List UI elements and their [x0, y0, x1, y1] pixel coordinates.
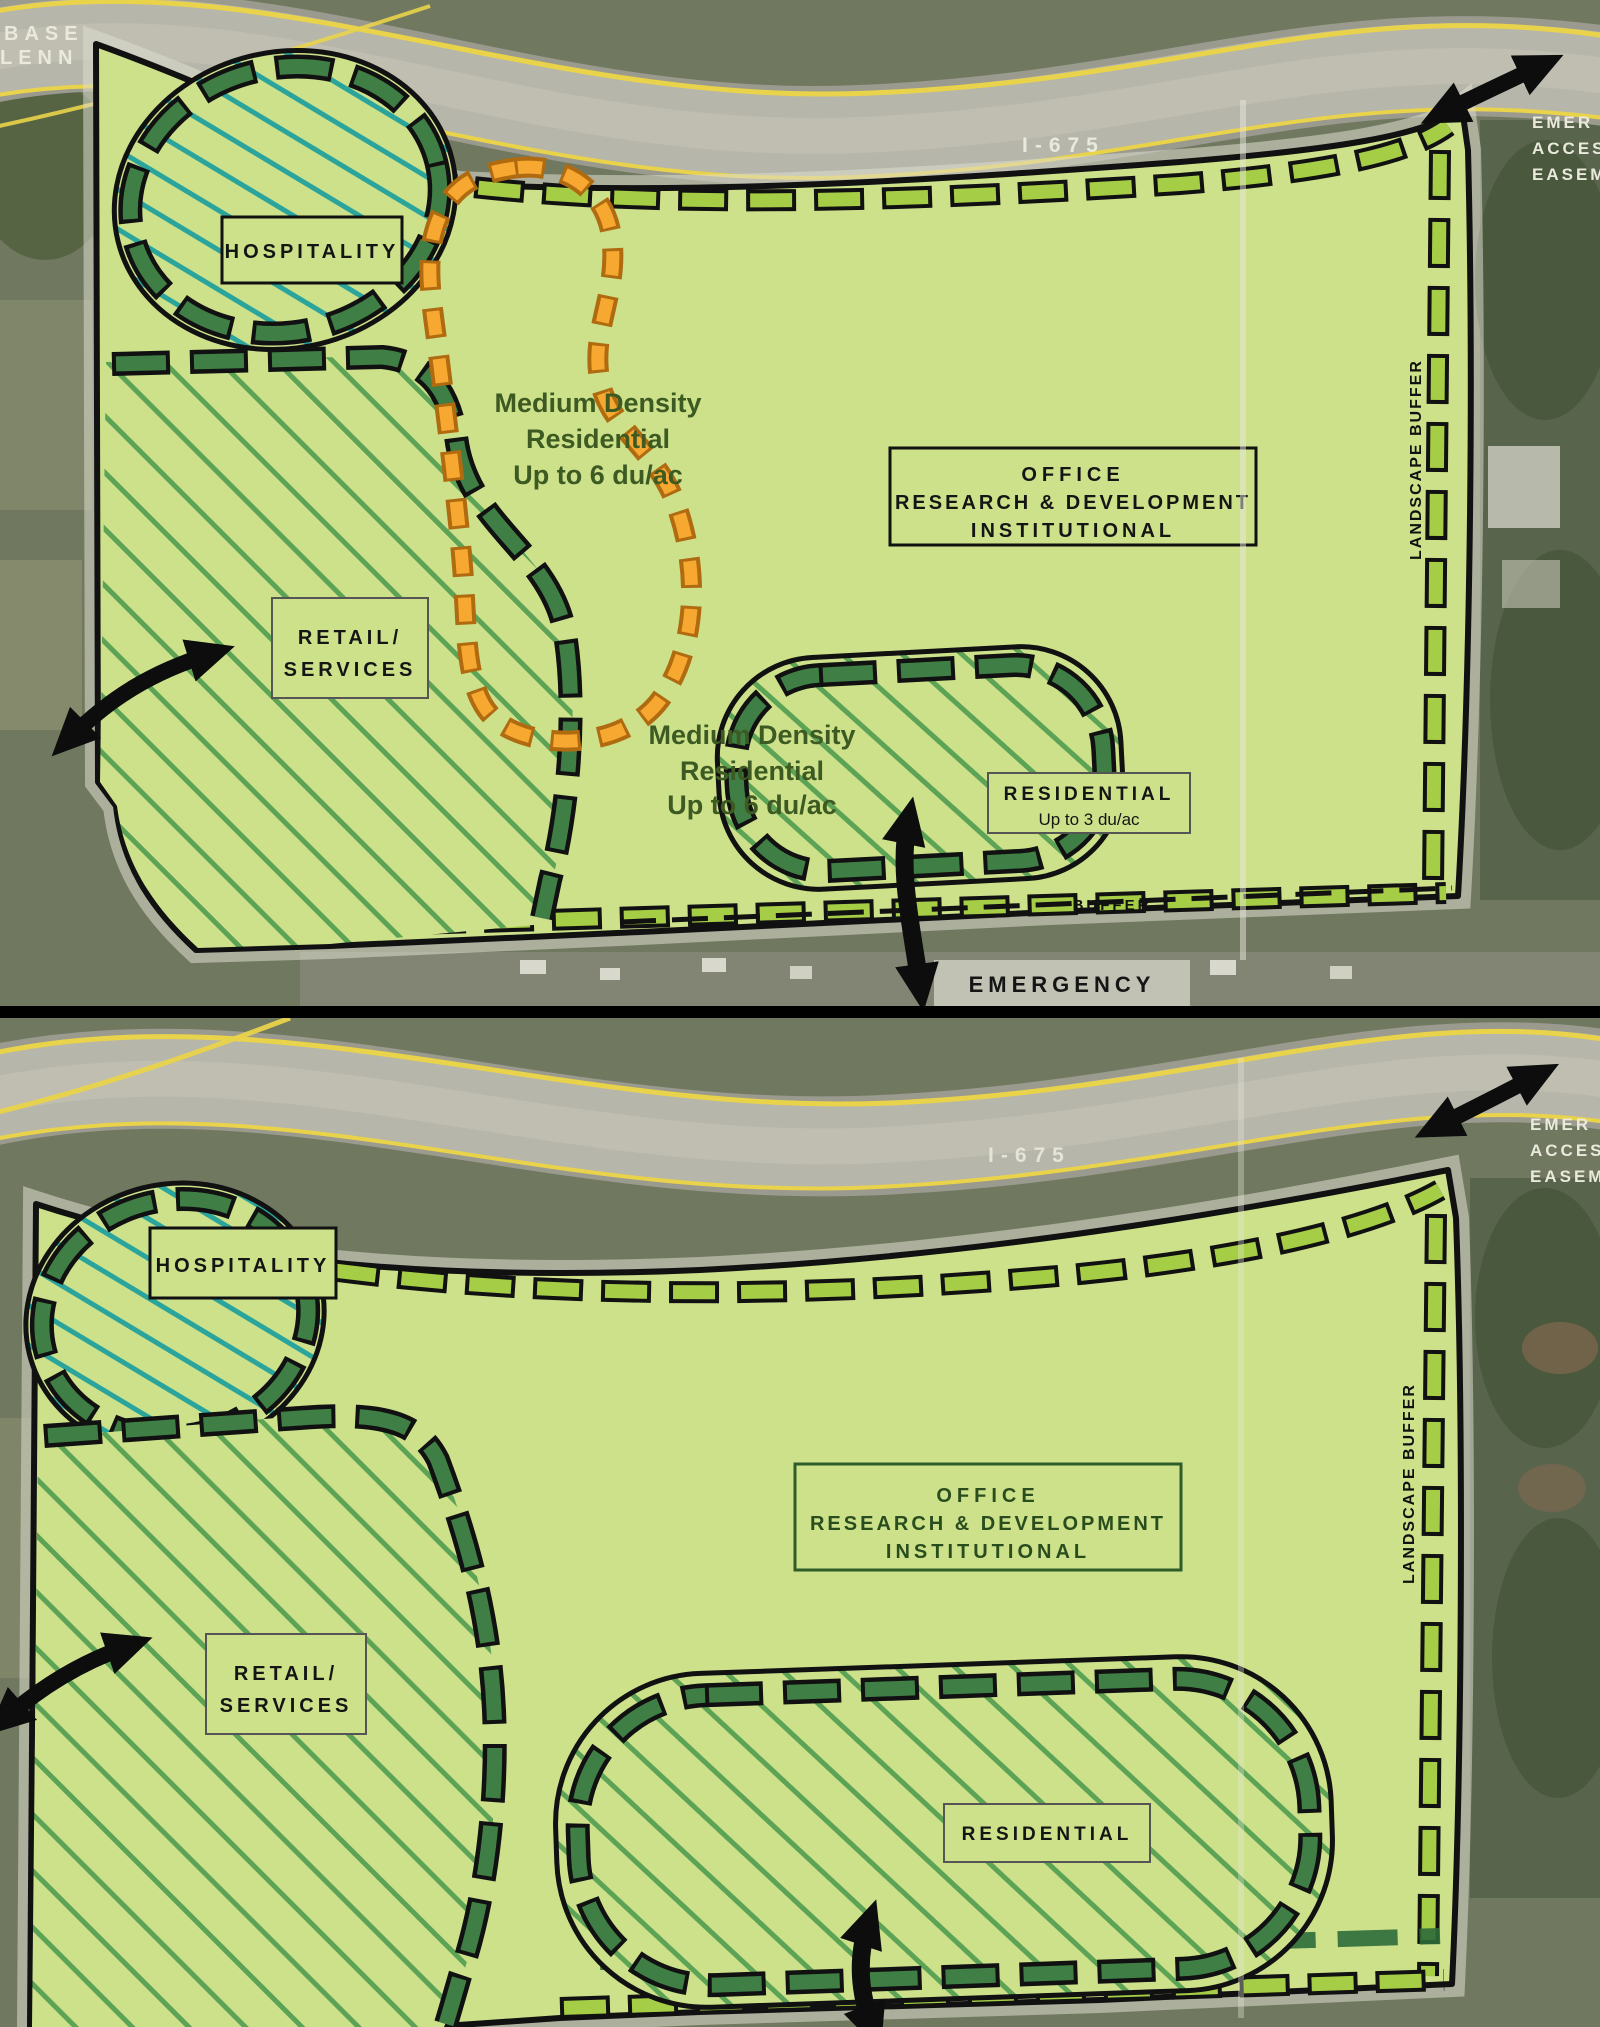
svg-text:Medium Density: Medium Density [494, 388, 701, 418]
svg-text:ACCES: ACCES [1530, 1141, 1600, 1160]
svg-text:EMER: EMER [1530, 1115, 1591, 1134]
easement-label-right: EMER ACCES EASEM [1530, 1115, 1600, 1186]
svg-text:RESEARCH & DEVELOPMENT: RESEARCH & DEVELOPMENT [895, 492, 1251, 514]
svg-text:ACCES: ACCES [1532, 139, 1600, 158]
svg-text:EASEM: EASEM [1532, 165, 1600, 184]
landscape-buffer-vertical-label: LANDSCAPE BUFFER [1401, 1383, 1418, 1584]
retail-services-zone: RETAIL/ SERVICES [32, 1414, 497, 2027]
svg-text:EASEM: EASEM [1530, 1167, 1600, 1186]
landscape-buffer-vertical-label: LANDSCAPE BUFFER [1408, 359, 1425, 560]
scanned-concept-plans: I-675 LANDSCAPE BUFFER HOSPITALITY [0, 0, 1600, 2027]
retail-label-line1: RETAIL/ [298, 627, 402, 649]
panel-divider-line [0, 1006, 1600, 1018]
svg-text:Up to 6 du/ac: Up to 6 du/ac [667, 790, 837, 820]
highway-label: I-675 [988, 1144, 1071, 1167]
svg-text:LENN: LENN [0, 47, 78, 69]
lower-concept-plan: I-675 LANDSCAPE BUFFER LANDSCAPE BUFFER … [0, 1018, 1600, 2027]
svg-text:RESEARCH & DEVELOPMENT: RESEARCH & DEVELOPMENT [810, 1513, 1166, 1535]
svg-text:Residential: Residential [526, 424, 670, 454]
residential-label: RESIDENTIAL [962, 1824, 1133, 1845]
svg-text:EMER: EMER [1532, 113, 1593, 132]
svg-text:OFFICE: OFFICE [1021, 464, 1124, 486]
office-zone-label: OFFICE RESEARCH & DEVELOPMENT INSTITUTIO… [890, 448, 1256, 545]
hospitality-label: HOSPITALITY [156, 1255, 331, 1277]
upper-plan-drawing: I-675 LANDSCAPE BUFFER HOSPITALITY [0, 0, 1600, 1006]
scan-fold-line [1238, 1058, 1244, 2018]
retail-label-line1: RETAIL/ [234, 1663, 338, 1685]
office-zone-label: OFFICE RESEARCH & DEVELOPMENT INSTITUTIO… [795, 1464, 1181, 1570]
residential-label: RESIDENTIAL [1004, 784, 1175, 805]
hospitality-label: HOSPITALITY [225, 241, 400, 263]
svg-text:BASE: BASE [4, 23, 84, 45]
svg-text:Up to 6 du/ac: Up to 6 du/ac [513, 460, 683, 490]
svg-text:OFFICE: OFFICE [936, 1485, 1039, 1507]
svg-text:INSTITUTIONAL: INSTITUTIONAL [886, 1541, 1090, 1563]
svg-text:Medium Density: Medium Density [648, 720, 855, 750]
svg-text:INSTITUTIONAL: INSTITUTIONAL [971, 520, 1175, 542]
upper-concept-plan: I-675 LANDSCAPE BUFFER HOSPITALITY [0, 0, 1600, 1006]
svg-text:Residential: Residential [680, 756, 824, 786]
highway-label: I-675 [1022, 134, 1105, 157]
lower-plan-drawing: I-675 LANDSCAPE BUFFER LANDSCAPE BUFFER … [0, 1018, 1600, 2027]
retail-label-line2: SERVICES [220, 1695, 353, 1717]
emergency-access-bottom: EMERGENCY ACCESS [934, 960, 1190, 1006]
easement-label-right: EMER ACCES EASEM [1532, 113, 1600, 184]
retail-label-line2: SERVICES [284, 659, 417, 681]
residential-sublabel: Up to 3 du/ac [1038, 810, 1140, 829]
svg-text:EMERGENCY: EMERGENCY [969, 972, 1156, 997]
scan-fold-line [1240, 100, 1246, 960]
